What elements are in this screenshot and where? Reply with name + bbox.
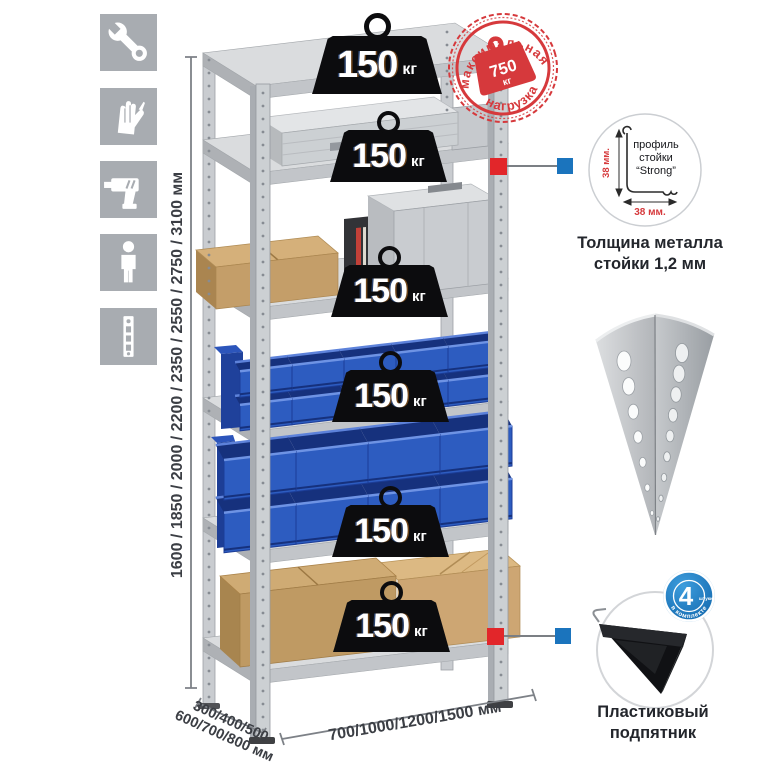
shelf-load-badge-2: 150кг <box>330 111 447 182</box>
svg-text:“Strong”: “Strong” <box>636 165 676 177</box>
badge-count: 4 <box>679 581 694 611</box>
shelf-load-badge-4: 150кг <box>332 351 449 422</box>
profile-vertical-dim: 38 мм. <box>601 148 612 178</box>
max-load-stamp: максимальная нагрузка 750 кг <box>437 2 569 134</box>
product-infographic: 1600 / 1850 / 2000 / 2200 / 2350 / 2550 … <box>0 0 765 765</box>
person-icon <box>100 234 157 291</box>
connector-red-bottom <box>487 628 504 645</box>
drill-icon <box>100 161 157 218</box>
profile-label: профиль стойки “Strong” <box>633 139 679 177</box>
height-dimension-label: 1600 / 1850 / 2000 / 2200 / 2350 / 2550 … <box>169 95 187 655</box>
shelf-load-badge-6: 150кг <box>333 581 450 652</box>
connector-red-top <box>490 158 507 175</box>
profile-horizontal-dim: 38 мм. <box>634 207 666 218</box>
weight-ring <box>364 13 391 40</box>
badge-unit: штуки <box>699 596 713 601</box>
weight-ring <box>377 111 400 134</box>
rack-post-icon <box>100 308 157 365</box>
post-profile-detail: 38 мм. 38 мм. профиль стойки “Strong” <box>563 108 738 236</box>
weight-ring <box>380 581 403 604</box>
weight-ring <box>379 486 402 509</box>
shelf-load-badge-1: 150кг <box>312 13 442 94</box>
svg-text:стойки: стойки <box>639 152 673 164</box>
kit-count-badge: 4 штуки в комплекте <box>663 570 715 622</box>
shelf-load-badge-5: 150кг <box>332 486 449 557</box>
gloves-icon <box>100 88 157 145</box>
foot-caption: Пластиковый подпятник <box>563 702 743 743</box>
metal-angle-post <box>572 303 737 543</box>
weight-ring <box>378 246 401 269</box>
weight-ring <box>379 351 402 374</box>
profile-caption: Толщина металла стойки 1,2 мм <box>560 233 740 274</box>
wrench-icon <box>100 14 157 71</box>
shelf-load-badge-3: 150кг <box>331 246 448 317</box>
svg-text:профиль: профиль <box>633 139 679 151</box>
